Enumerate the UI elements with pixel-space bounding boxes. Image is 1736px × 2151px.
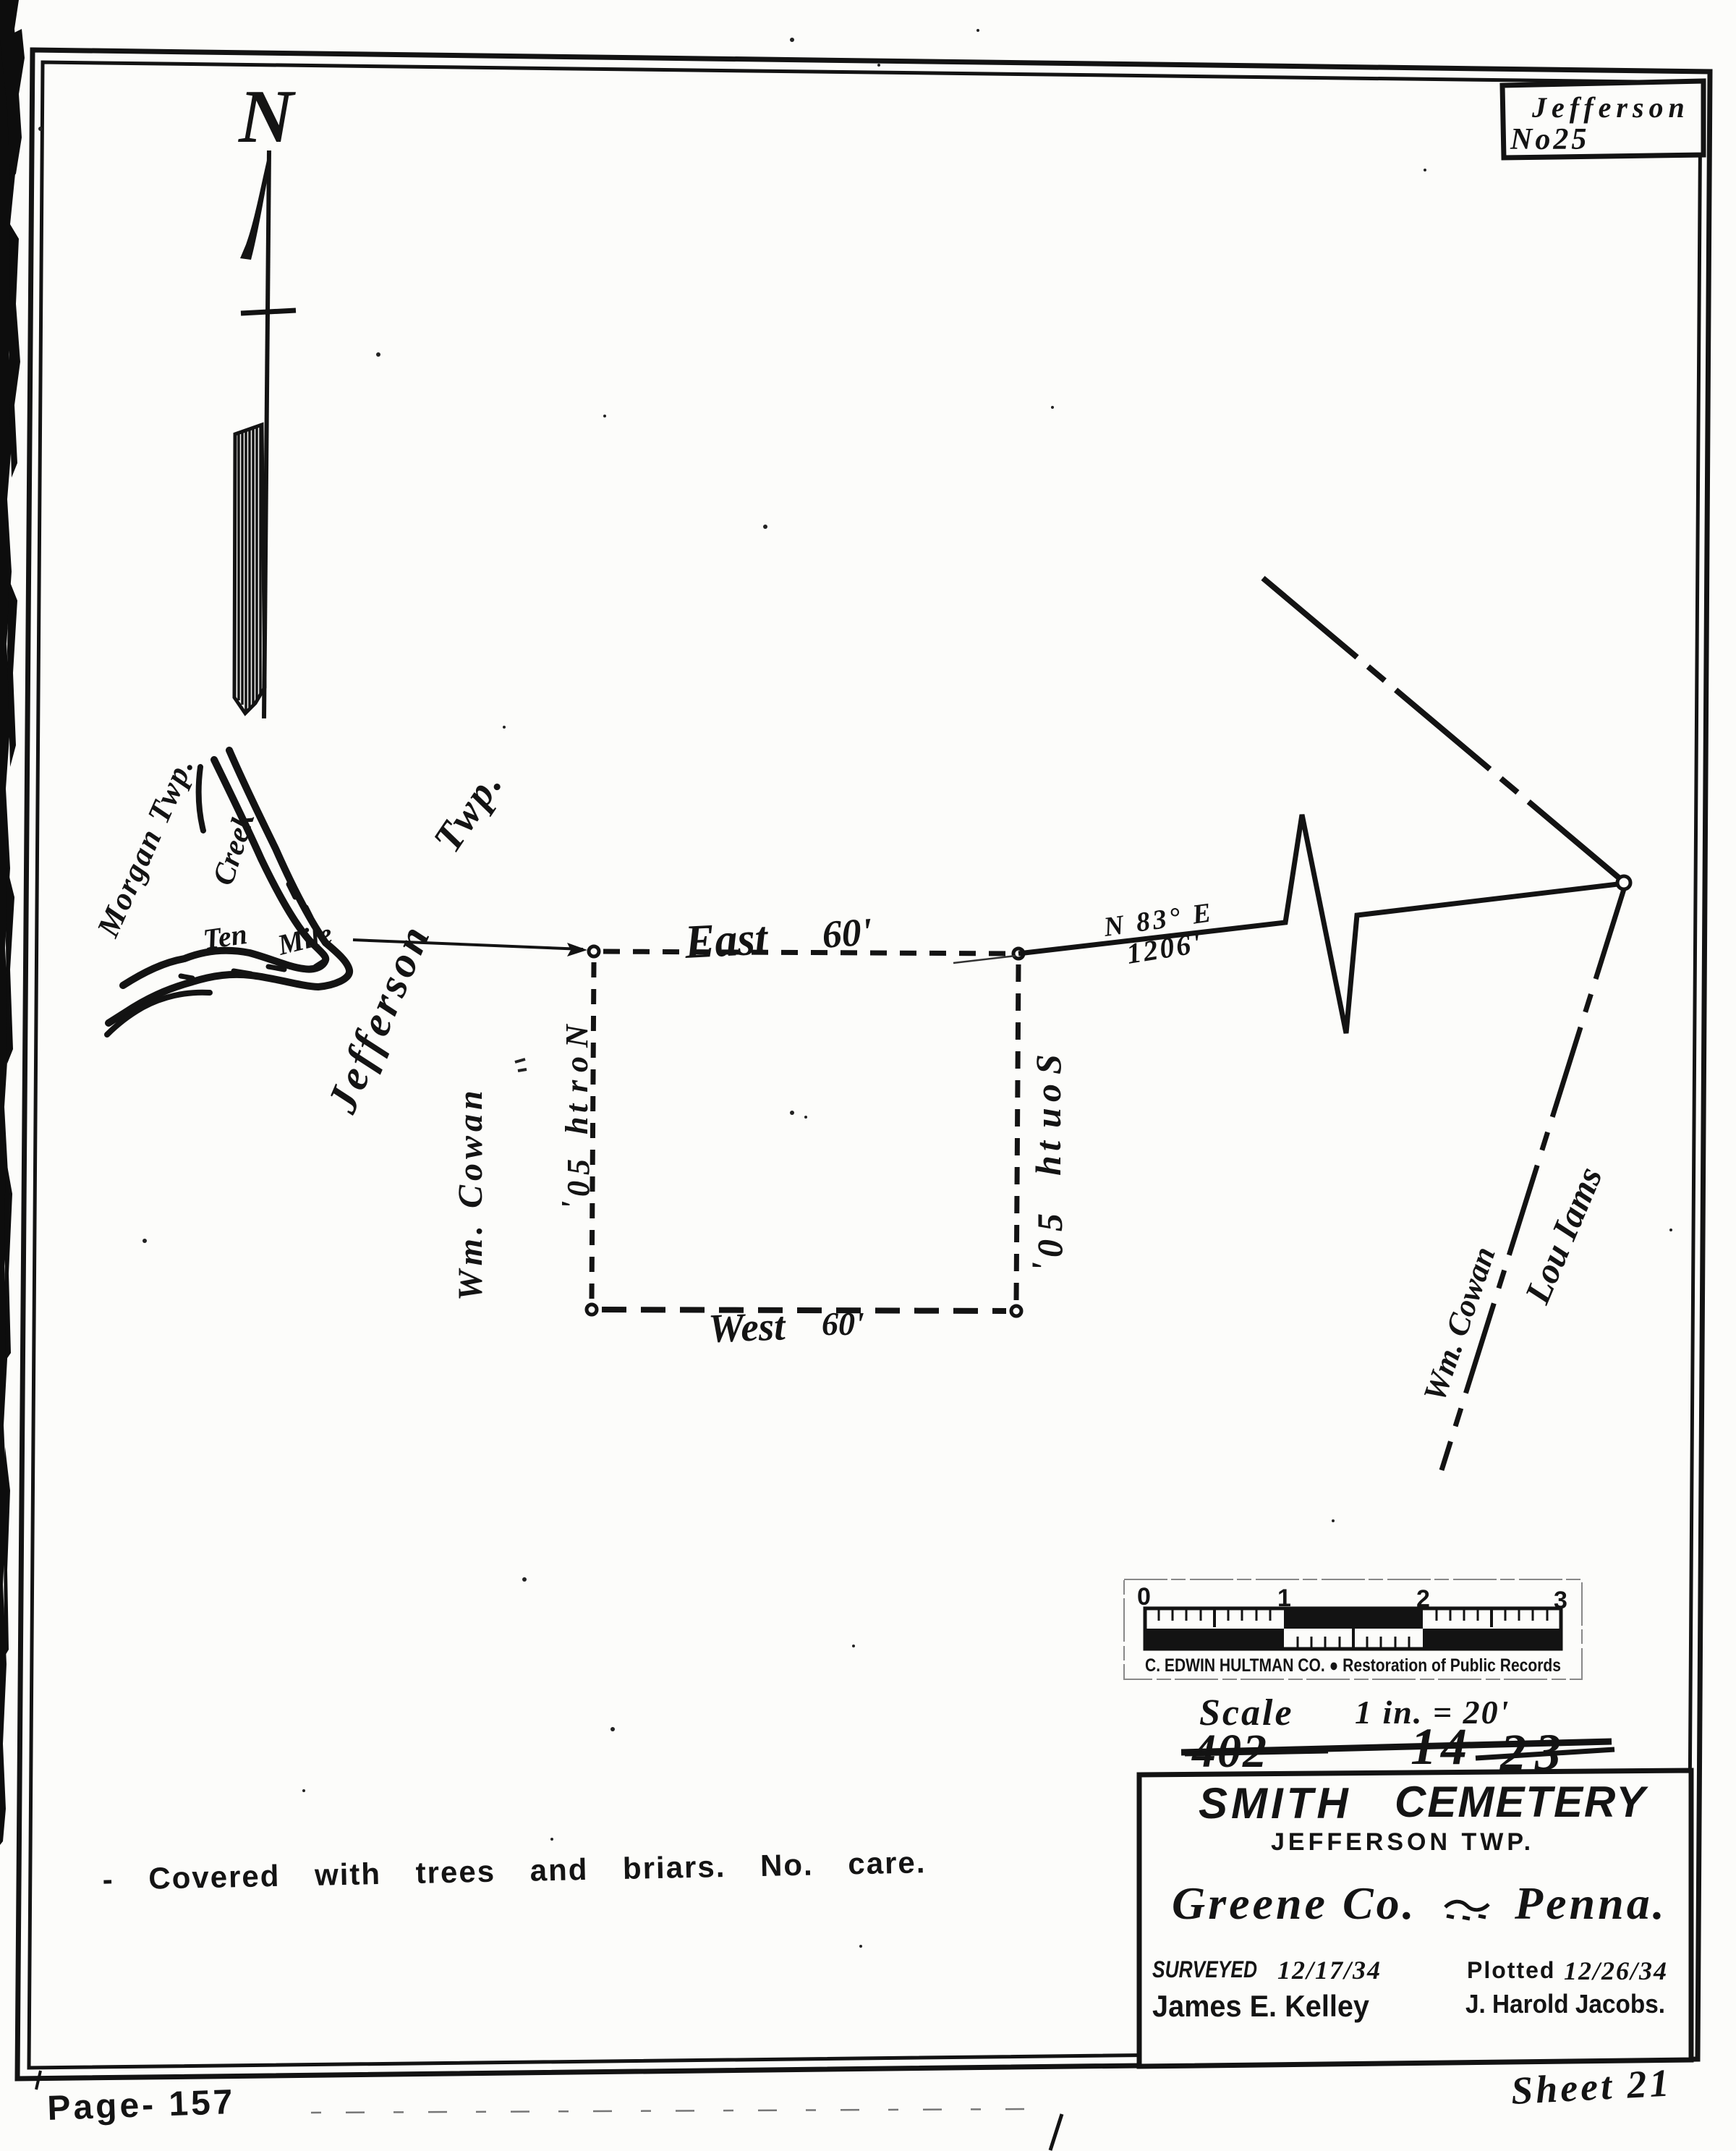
svg-text:0: 0 [561,1181,596,1197]
svg-text:0: 0 [1137,1583,1151,1611]
svg-text:': ' [555,1201,590,1210]
svg-text:t: t [559,1103,595,1113]
svg-text:Jefferson: Jefferson [1531,91,1690,124]
svg-text:3: 3 [1554,1587,1567,1614]
svg-text:JEFFERSON TWP.: JEFFERSON TWP. [1271,1828,1534,1856]
svg-text:Ten: Ten [201,917,249,956]
svg-text:SURVEYED: SURVEYED [1152,1956,1257,1982]
svg-text:60': 60' [821,909,874,956]
svg-text:t: t [1028,1140,1068,1151]
svg-text:u: u [1028,1108,1068,1128]
svg-text:1: 1 [1277,1584,1291,1612]
svg-text:h: h [1028,1155,1068,1176]
svg-text:12/26/34: 12/26/34 [1564,1956,1668,1985]
svg-text:N: N [559,1023,595,1048]
svg-text:2: 2 [1416,1585,1430,1613]
svg-text:5: 5 [561,1159,596,1175]
svg-text:East: East [683,912,770,969]
svg-text:r: r [559,1079,595,1093]
svg-text:Page- 157: Page- 157 [47,2083,237,2128]
svg-text:12/17/34: 12/17/34 [1277,1956,1382,1985]
svg-text:CEMETERY: CEMETERY [1395,1778,1648,1826]
svg-text:o: o [1028,1084,1068,1102]
svg-text:Plotted: Plotted [1467,1957,1555,1983]
svg-text:60': 60' [822,1305,864,1342]
svg-text:0: 0 [1029,1239,1070,1257]
svg-text:Sheet 21: Sheet 21 [1510,2061,1672,2113]
svg-text:SMITH: SMITH [1199,1779,1352,1828]
svg-text:Penna.: Penna. [1514,1878,1667,1929]
svg-text:No25: No25 [1510,123,1589,156]
svg-text:N: N [238,74,296,158]
svg-text:James E. Kelley: James E. Kelley [1152,1989,1370,2023]
svg-text:West: West [707,1304,787,1352]
svg-text:S: S [1028,1054,1068,1074]
svg-text:h: h [559,1117,595,1134]
svg-text:J. Harold Jacobs.: J. Harold Jacobs. [1465,1989,1665,2019]
svg-text:Wm. Cowan: Wm. Cowan [451,1086,490,1301]
svg-text:5: 5 [1029,1213,1070,1231]
svg-text:C. EDWIN HULTMAN CO. ● Restora: C. EDWIN HULTMAN CO. ● Restoration of Pu… [1145,1655,1561,1676]
svg-text:o: o [559,1056,595,1072]
svg-text:Greene Co.: Greene Co. [1172,1878,1417,1929]
svg-text:': ' [1024,1262,1064,1272]
